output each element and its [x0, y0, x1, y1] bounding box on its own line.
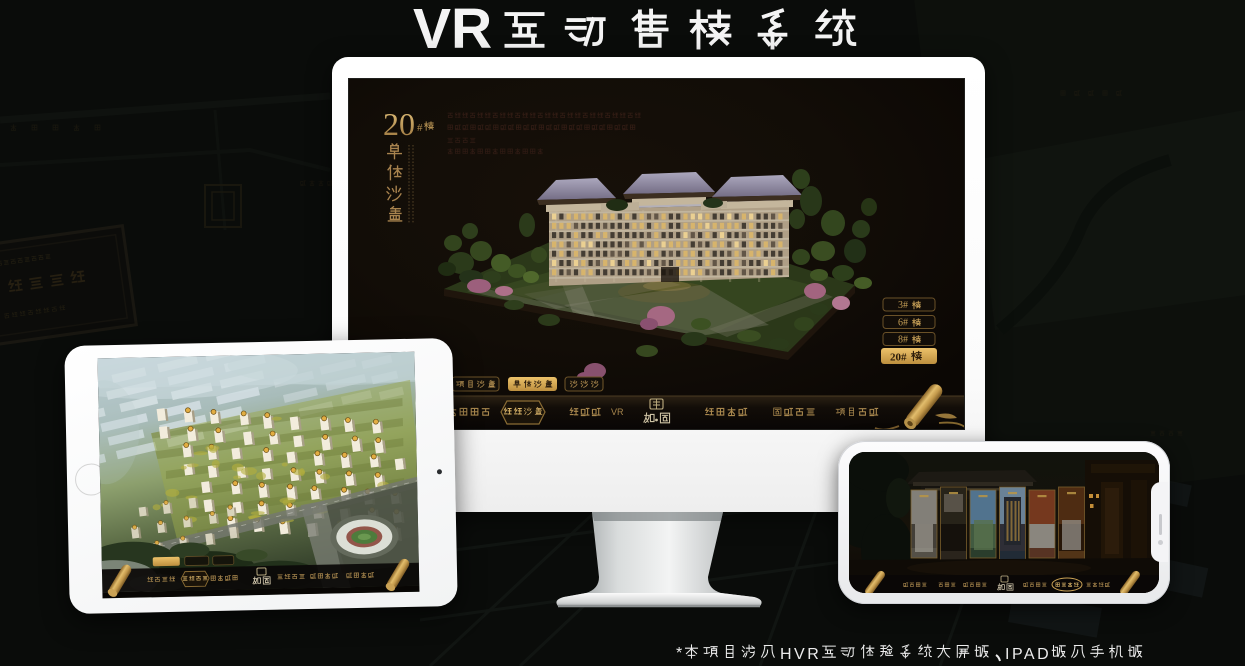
svg-text:*: * — [676, 645, 682, 662]
svg-text:6#: 6# — [898, 318, 908, 329]
svg-text:20#: 20# — [890, 352, 907, 364]
svg-text:HVR: HVR — [780, 646, 821, 663]
svg-text:8#: 8# — [898, 335, 908, 346]
svg-text:3#: 3# — [898, 300, 908, 311]
svg-text:20: 20 — [383, 106, 415, 142]
svg-text:VR: VR — [611, 407, 624, 417]
svg-text:#: # — [417, 122, 423, 134]
svg-text:VR: VR — [413, 1, 492, 59]
svg-text:IPAD: IPAD — [1005, 646, 1051, 663]
